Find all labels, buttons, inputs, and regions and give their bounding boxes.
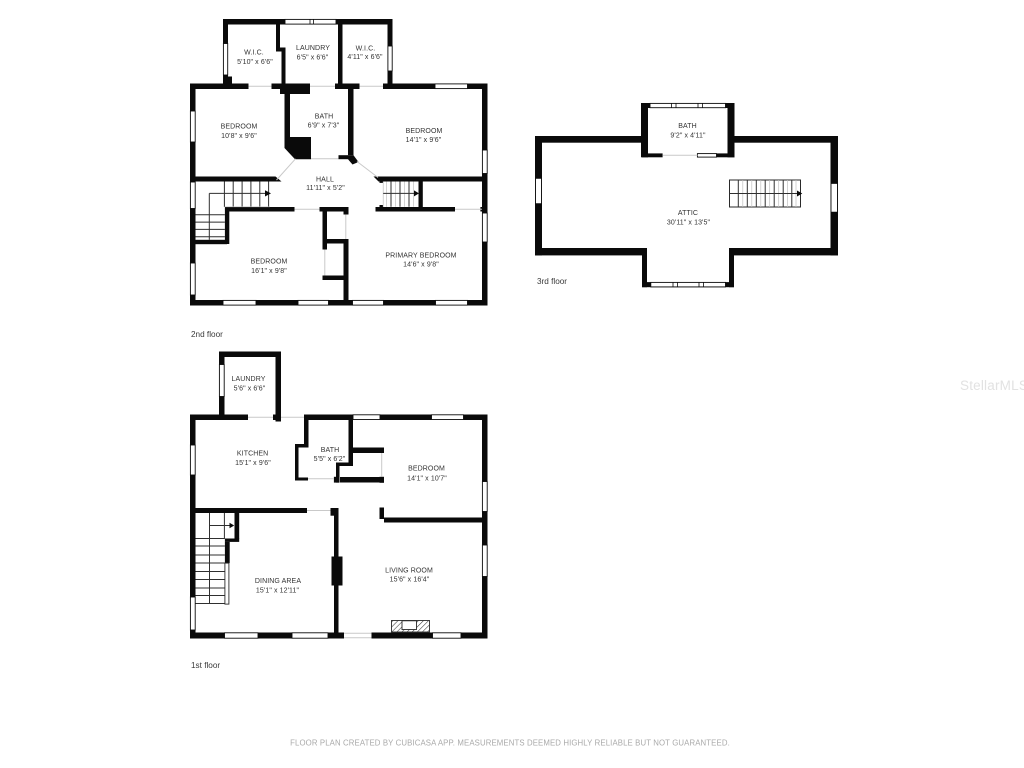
svg-text:5'5" x 6'2": 5'5" x 6'2" [314,456,346,463]
svg-text:6'5" x 6'6": 6'5" x 6'6" [297,55,329,62]
svg-text:BEDROOM: BEDROOM [221,124,258,131]
svg-text:15'6" x 16'4": 15'6" x 16'4" [390,577,430,584]
svg-text:LAUNDRY: LAUNDRY [296,45,330,52]
svg-text:W.I.C.: W.I.C. [244,50,264,57]
svg-text:5'10" x 6'6": 5'10" x 6'6" [237,59,273,66]
svg-text:HALL: HALL [316,177,334,184]
svg-text:BEDROOM: BEDROOM [408,466,445,473]
svg-text:16'1" x 9'8": 16'1" x 9'8" [251,268,287,275]
svg-text:30'11" x 13'5": 30'11" x 13'5" [667,220,711,227]
svg-text:BEDROOM: BEDROOM [406,128,443,135]
svg-text:6'9" x 7'3": 6'9" x 7'3" [308,123,340,130]
svg-text:BATH: BATH [321,447,340,454]
svg-text:BATH: BATH [315,114,334,121]
svg-text:BEDROOM: BEDROOM [251,259,288,266]
svg-text:StellarMLS: StellarMLS [960,378,1024,393]
svg-text:11'11" x 5'2": 11'11" x 5'2" [306,185,345,192]
svg-text:14'1" x 10'7": 14'1" x 10'7" [407,476,447,483]
svg-text:14'6" x 9'8": 14'6" x 9'8" [403,262,439,269]
svg-text:9'2" x 4'11": 9'2" x 4'11" [670,133,706,140]
svg-text:5'6" x 6'6": 5'6" x 6'6" [234,386,266,393]
svg-text:LIVING ROOM: LIVING ROOM [385,568,433,575]
svg-text:14'1" x 9'6": 14'1" x 9'6" [406,137,442,144]
svg-text:15'1" x 9'6": 15'1" x 9'6" [235,460,271,467]
svg-text:2nd floor: 2nd floor [191,330,223,339]
svg-text:1st floor: 1st floor [191,661,220,670]
svg-text:4'11" x 6'6": 4'11" x 6'6" [347,54,383,61]
svg-text:W.I.C.: W.I.C. [356,46,376,53]
svg-text:FLOOR PLAN CREATED BY CUBICASA: FLOOR PLAN CREATED BY CUBICASA APP. MEAS… [290,739,730,748]
svg-text:ATTIC: ATTIC [678,210,698,217]
svg-text:15'1" x 12'11": 15'1" x 12'11" [256,588,300,595]
svg-text:KITCHEN: KITCHEN [237,451,268,458]
svg-text:LAUNDRY: LAUNDRY [231,376,265,383]
svg-text:BATH: BATH [678,123,697,130]
svg-text:DINING AREA: DINING AREA [255,578,301,585]
svg-text:10'8" x 9'6": 10'8" x 9'6" [221,133,257,140]
svg-text:PRIMARY BEDROOM: PRIMARY BEDROOM [385,253,456,260]
svg-text:3rd floor: 3rd floor [537,277,567,286]
